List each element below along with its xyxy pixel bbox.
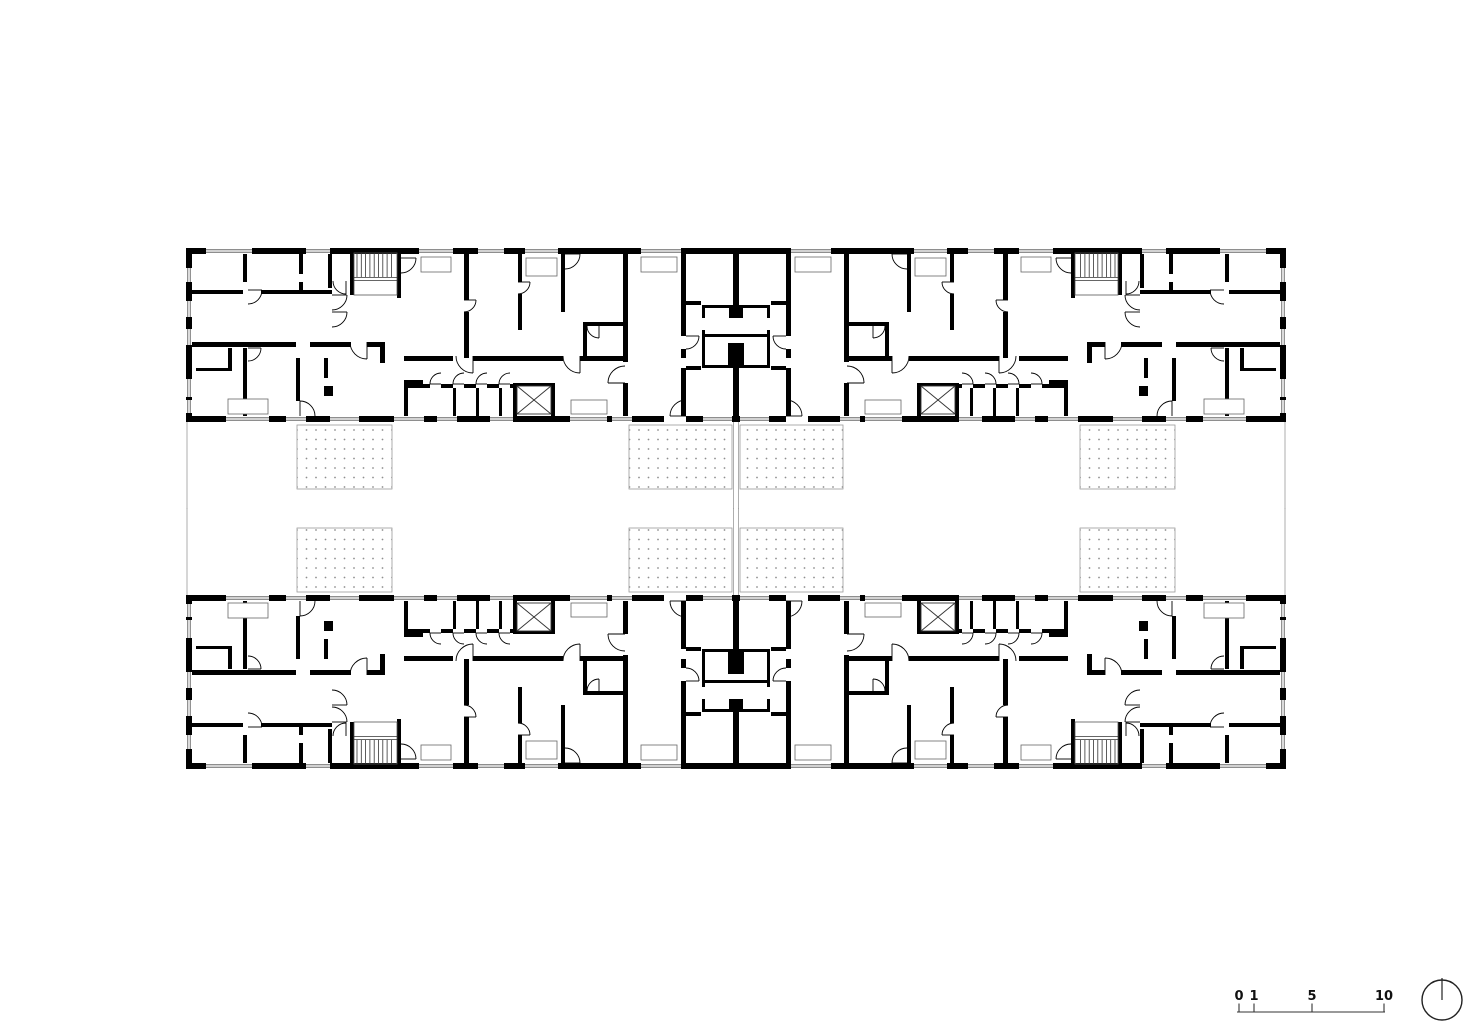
drawing-sheet: 01510 [0, 0, 1473, 1028]
patio-dotted-area [1080, 528, 1175, 592]
patio-dotted-area [629, 528, 732, 592]
patio-dotted-area [297, 425, 392, 489]
patio-dotted-area [297, 528, 392, 592]
patio-dotted-area [629, 425, 732, 489]
patio-dotted-area [740, 425, 843, 489]
patio-dotted-area [1080, 425, 1175, 489]
scale-label-5: 5 [1307, 989, 1316, 1004]
patio-dotted-area [740, 528, 843, 592]
scale-label-0: 0 [1234, 989, 1243, 1004]
floor-plan-drawing: 01510 [0, 0, 1473, 1028]
scale-label-1: 1 [1249, 989, 1258, 1004]
scale-label-10: 10 [1375, 989, 1393, 1004]
